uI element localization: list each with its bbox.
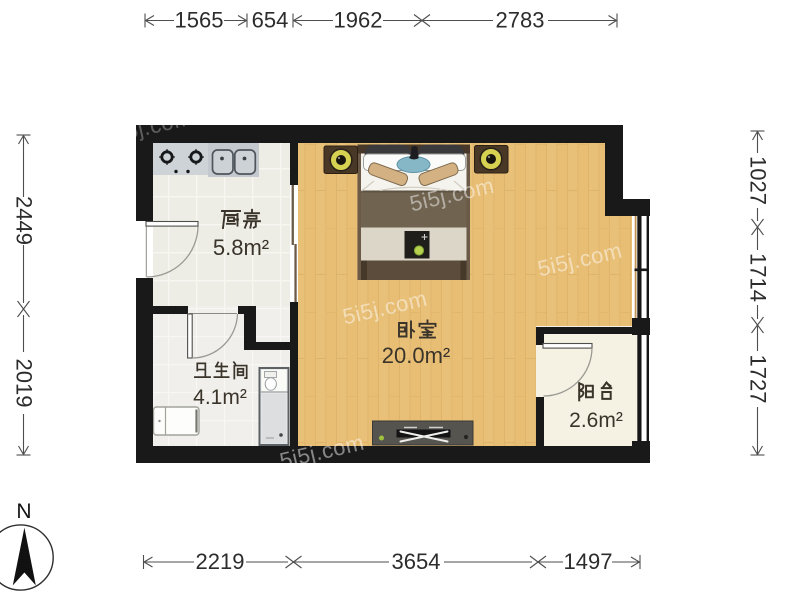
svg-text:1027: 1027 — [746, 156, 771, 205]
svg-text:2219: 2219 — [196, 549, 245, 574]
svg-text:1497: 1497 — [564, 549, 613, 574]
svg-text:1714: 1714 — [746, 253, 771, 302]
svg-text:1727: 1727 — [746, 355, 771, 404]
svg-text:1565: 1565 — [175, 8, 224, 33]
svg-text:2019: 2019 — [12, 359, 37, 408]
svg-text:2.6m²: 2.6m² — [569, 409, 623, 432]
svg-text:20.0m²: 20.0m² — [382, 343, 450, 368]
svg-text:1962: 1962 — [334, 8, 383, 33]
svg-text:654: 654 — [252, 8, 289, 33]
svg-text:5.8m²: 5.8m² — [213, 235, 269, 260]
svg-text:2783: 2783 — [496, 8, 545, 33]
svg-text:2449: 2449 — [12, 196, 37, 245]
svg-text:N: N — [16, 500, 31, 523]
svg-text:4.1m²: 4.1m² — [193, 386, 247, 409]
svg-text:3654: 3654 — [392, 549, 441, 574]
